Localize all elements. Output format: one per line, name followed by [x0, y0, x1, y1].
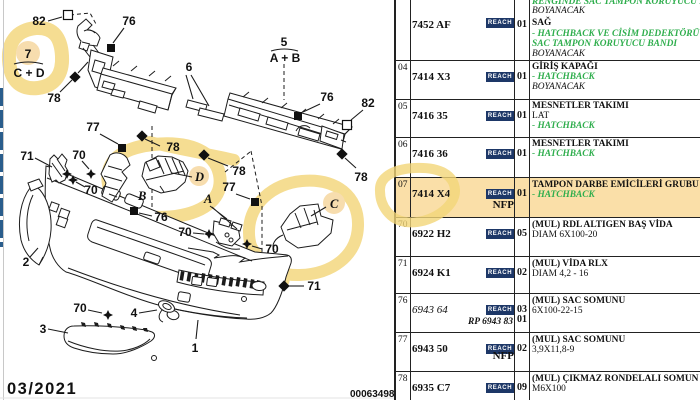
svg-text:78: 78: [47, 91, 61, 105]
svg-text:D: D: [194, 170, 204, 184]
svg-text:C: C: [330, 197, 339, 211]
svg-text:A + B: A + B: [270, 51, 301, 65]
svg-text:C + D: C + D: [13, 66, 44, 80]
svg-text:78: 78: [354, 170, 368, 184]
svg-text:6: 6: [186, 60, 193, 74]
svg-text:7: 7: [25, 47, 32, 61]
svg-text:4: 4: [131, 306, 138, 320]
svg-text:77: 77: [86, 120, 100, 134]
svg-text:70: 70: [265, 242, 279, 256]
svg-text:82: 82: [361, 96, 375, 110]
svg-text:03/2021: 03/2021: [7, 380, 77, 398]
svg-text:78: 78: [232, 164, 246, 178]
svg-text:71: 71: [20, 149, 34, 163]
svg-text:00063498: 00063498: [350, 389, 395, 400]
svg-text:3: 3: [40, 322, 47, 336]
svg-text:76: 76: [154, 210, 168, 224]
svg-text:76: 76: [122, 14, 136, 28]
svg-text:77: 77: [222, 180, 236, 194]
svg-text:71: 71: [307, 279, 321, 293]
svg-text:70: 70: [73, 301, 87, 315]
svg-text:A: A: [203, 192, 212, 206]
svg-text:1: 1: [192, 341, 199, 355]
svg-text:5: 5: [281, 35, 288, 49]
svg-text:70: 70: [84, 183, 98, 197]
svg-text:B: B: [137, 189, 146, 203]
svg-text:78: 78: [166, 140, 180, 154]
svg-text:70: 70: [178, 225, 192, 239]
svg-text:2: 2: [23, 255, 30, 269]
svg-text:70: 70: [72, 148, 86, 162]
svg-text:76: 76: [320, 90, 334, 104]
svg-text:82: 82: [32, 14, 46, 28]
